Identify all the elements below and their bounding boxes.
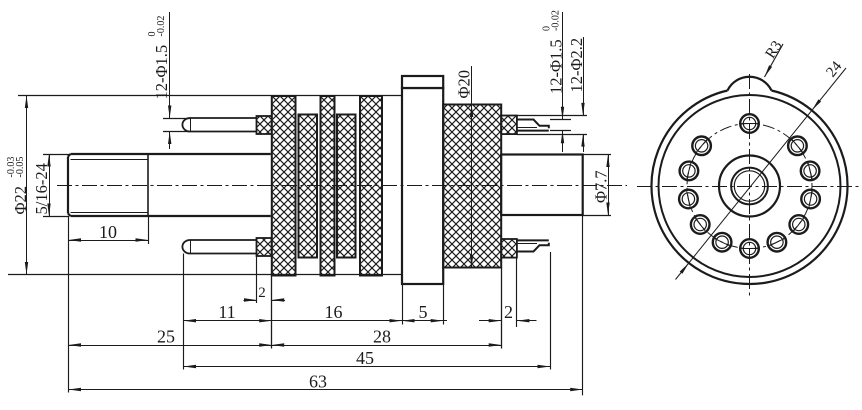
- svg-text:16: 16: [325, 302, 343, 322]
- svg-text:-0.02: -0.02: [156, 16, 167, 37]
- svg-text:Φ7.7: Φ7.7: [592, 170, 611, 203]
- svg-text:12-Φ1.5: 12-Φ1.5: [152, 45, 171, 100]
- svg-text:5: 5: [419, 302, 428, 322]
- svg-text:25: 25: [157, 327, 175, 347]
- svg-text:Φ22: Φ22: [11, 186, 30, 215]
- svg-text:12-Φ1.5: 12-Φ1.5: [546, 39, 565, 94]
- svg-text:63: 63: [309, 372, 327, 392]
- svg-text:5/16-24: 5/16-24: [32, 163, 51, 214]
- svg-text:Φ20: Φ20: [455, 70, 474, 99]
- svg-text:2: 2: [258, 285, 266, 301]
- svg-text:11: 11: [218, 302, 235, 322]
- svg-text:-0.02: -0.02: [551, 10, 562, 31]
- svg-text:12-Φ2.2: 12-Φ2.2: [567, 38, 586, 93]
- svg-text:-0.05: -0.05: [15, 157, 26, 178]
- svg-text:10: 10: [99, 222, 117, 242]
- svg-text:28: 28: [373, 327, 391, 347]
- svg-text:2: 2: [504, 302, 513, 322]
- svg-text:45: 45: [356, 348, 374, 368]
